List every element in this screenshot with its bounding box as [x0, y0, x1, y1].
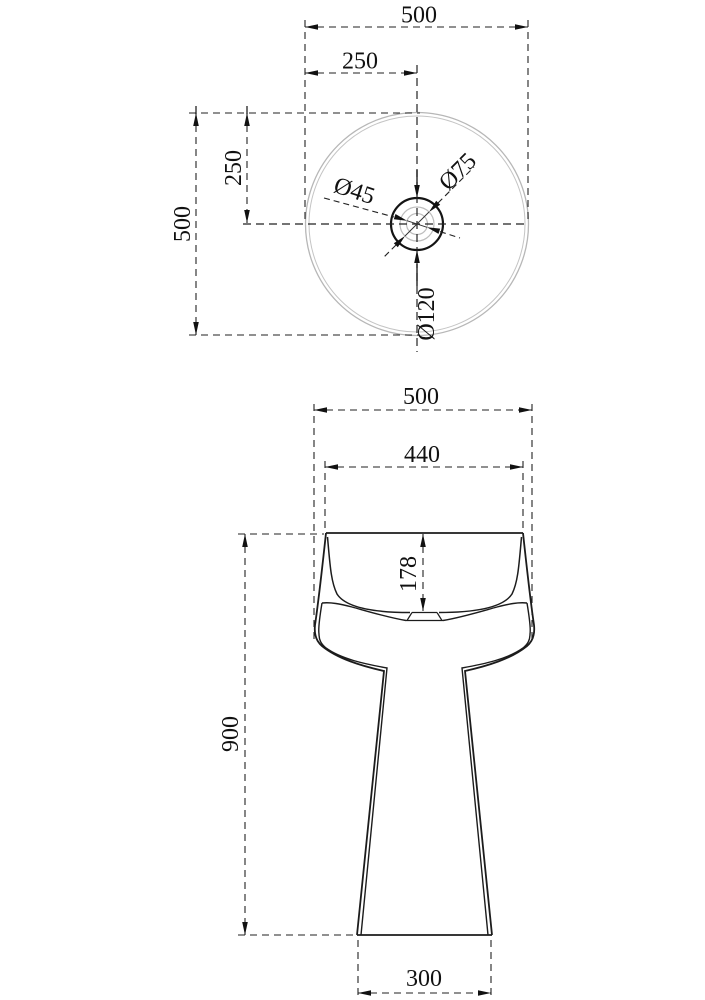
front-view: 500 440 178 900 300 [218, 384, 534, 999]
dim-top-width-500: 500 [305, 3, 528, 30]
dim-height-900: 900 [218, 534, 248, 935]
dim-label: Ø45 [330, 173, 377, 211]
sink-technical-drawing: 500 250 500 250 [0, 0, 705, 1000]
dim-top-half-width-250: 250 [305, 49, 417, 76]
dim-front-rim-440: 440 [325, 442, 523, 470]
dim-basin-depth-178: 178 [396, 534, 426, 611]
dim-label: Ø120 [414, 287, 440, 340]
dim-label: 178 [396, 556, 422, 592]
dim-label: 500 [403, 384, 439, 410]
dim-label: 300 [406, 966, 442, 992]
inner-profile-right [462, 603, 530, 935]
dim-left-height-500: 500 [170, 106, 199, 335]
dim-label: 440 [404, 442, 440, 468]
drain-detail [406, 613, 443, 621]
dim-label: Ø75 [434, 148, 482, 196]
annotation-diameter-120: Ø120 [414, 170, 440, 341]
dim-label: 250 [342, 49, 378, 75]
dim-label: 500 [401, 3, 437, 29]
bowl-interior-right [439, 537, 522, 613]
dim-label: 500 [170, 206, 196, 242]
dim-label: 900 [218, 716, 244, 752]
outer-profile-right [465, 533, 534, 935]
drawing-sheet: 500 250 500 250 [0, 0, 705, 1000]
dim-base-300: 300 [358, 966, 491, 996]
dim-left-half-height-250: 250 [221, 106, 250, 223]
dim-front-width-500: 500 [314, 384, 532, 413]
top-view: 500 250 500 250 [170, 3, 529, 353]
inner-profile-left [319, 603, 387, 935]
dim-label: 250 [221, 150, 247, 186]
outer-profile-left [315, 533, 384, 935]
